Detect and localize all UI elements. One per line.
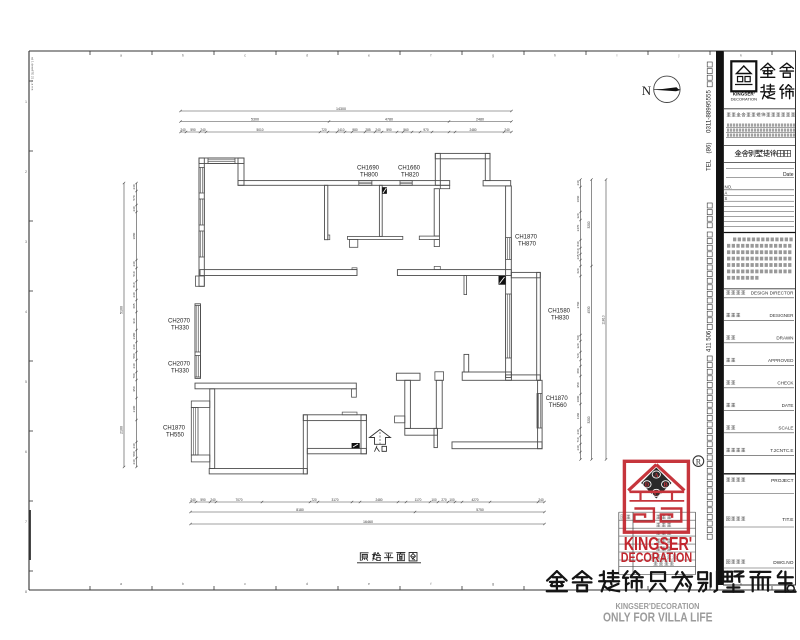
svg-text:235: 235 bbox=[576, 254, 580, 259]
svg-text:16460: 16460 bbox=[363, 520, 373, 524]
svg-text:APPROVED: APPROVED bbox=[768, 358, 794, 363]
svg-text:5010: 5010 bbox=[256, 128, 263, 132]
svg-text:TIT.E: TIT.E bbox=[782, 517, 793, 523]
svg-text:TH800: TH800 bbox=[360, 173, 379, 179]
svg-text:720: 720 bbox=[321, 128, 327, 132]
svg-text:680: 680 bbox=[576, 368, 580, 373]
svg-text:DESIGN DIRECTOR: DESIGN DIRECTOR bbox=[751, 290, 794, 295]
svg-text:(86): (86) bbox=[706, 142, 713, 153]
svg-text:510: 510 bbox=[132, 271, 136, 276]
svg-text:2480: 2480 bbox=[476, 117, 484, 121]
svg-text:2: 2 bbox=[25, 170, 27, 174]
svg-text:8180: 8180 bbox=[296, 508, 304, 512]
svg-text:1060: 1060 bbox=[576, 195, 580, 202]
svg-text:580: 580 bbox=[132, 353, 136, 358]
svg-text:TH330: TH330 bbox=[171, 326, 190, 332]
svg-text:b: b bbox=[182, 54, 184, 58]
svg-text:DECORATION: DECORATION bbox=[731, 97, 757, 102]
svg-text:240: 240 bbox=[576, 180, 580, 185]
svg-text:CH1580: CH1580 bbox=[548, 309, 571, 315]
svg-text:5: 5 bbox=[25, 380, 27, 384]
svg-text:S: S bbox=[725, 196, 728, 201]
svg-text:D: D bbox=[645, 482, 650, 489]
svg-text:710: 710 bbox=[576, 437, 580, 442]
svg-text:DECORATION: DECORATION bbox=[621, 550, 693, 566]
svg-text:f: f bbox=[431, 54, 432, 58]
svg-text:CH1690: CH1690 bbox=[357, 166, 380, 172]
svg-text:320: 320 bbox=[576, 213, 580, 218]
svg-text:4270: 4270 bbox=[471, 498, 478, 502]
svg-text:240: 240 bbox=[132, 292, 136, 297]
svg-text:720: 720 bbox=[311, 498, 317, 502]
svg-text:TEL: TEL bbox=[706, 159, 713, 171]
svg-text:240: 240 bbox=[180, 128, 186, 132]
svg-text:1: 1 bbox=[25, 100, 27, 104]
svg-text:240: 240 bbox=[132, 443, 136, 448]
svg-text:411 506: 411 506 bbox=[707, 330, 713, 352]
svg-text:1170: 1170 bbox=[415, 498, 422, 502]
svg-text:CHECK: CHECK bbox=[777, 380, 794, 385]
svg-text:7: 7 bbox=[25, 520, 27, 524]
svg-text:CH2070: CH2070 bbox=[168, 319, 191, 325]
svg-text:100: 100 bbox=[449, 498, 455, 502]
svg-text:4780: 4780 bbox=[385, 117, 393, 121]
svg-text:Date: Date bbox=[783, 172, 794, 178]
svg-text:2380: 2380 bbox=[132, 332, 136, 339]
svg-text:f: f bbox=[431, 582, 432, 586]
svg-text:240: 240 bbox=[132, 184, 136, 189]
svg-text:570: 570 bbox=[132, 195, 136, 200]
svg-text:2760: 2760 bbox=[576, 301, 580, 308]
svg-text:7070: 7070 bbox=[235, 498, 242, 502]
svg-text:790: 790 bbox=[576, 335, 580, 340]
svg-text:840: 840 bbox=[576, 241, 580, 246]
svg-text:590: 590 bbox=[200, 498, 206, 502]
svg-text:CH1870: CH1870 bbox=[546, 396, 569, 402]
svg-text:e: e bbox=[368, 54, 370, 58]
svg-text:2480: 2480 bbox=[469, 128, 476, 132]
svg-text:580: 580 bbox=[132, 451, 136, 456]
svg-text:2480: 2480 bbox=[375, 498, 382, 502]
svg-text:5750: 5750 bbox=[476, 508, 484, 512]
svg-text:950: 950 bbox=[576, 382, 580, 387]
svg-text:6: 6 bbox=[25, 450, 27, 454]
svg-text:3080: 3080 bbox=[132, 232, 136, 239]
svg-text:590: 590 bbox=[190, 128, 196, 132]
svg-text:240: 240 bbox=[504, 128, 510, 132]
svg-text:3170: 3170 bbox=[331, 498, 338, 502]
svg-text:DESIGNER: DESIGNER bbox=[770, 313, 795, 318]
svg-text:720: 720 bbox=[576, 353, 580, 358]
svg-text:j: j bbox=[678, 54, 680, 58]
svg-text:810: 810 bbox=[132, 282, 136, 287]
svg-text:NO.: NO. bbox=[725, 185, 733, 190]
svg-text:1410: 1410 bbox=[337, 128, 344, 132]
svg-text:240: 240 bbox=[132, 459, 136, 464]
svg-text:605: 605 bbox=[132, 303, 136, 308]
svg-text:620: 620 bbox=[576, 268, 580, 273]
svg-text:4: 4 bbox=[25, 310, 27, 314]
svg-text:240: 240 bbox=[210, 498, 216, 502]
svg-text:CH2070: CH2070 bbox=[168, 362, 191, 368]
svg-text:8: 8 bbox=[25, 590, 27, 594]
svg-text:14300: 14300 bbox=[336, 107, 346, 111]
svg-text:240: 240 bbox=[132, 344, 136, 349]
svg-text:950: 950 bbox=[132, 386, 136, 391]
svg-text:2100: 2100 bbox=[132, 405, 136, 412]
svg-text:240: 240 bbox=[375, 128, 381, 132]
svg-text:240: 240 bbox=[576, 429, 580, 434]
svg-text:DATE: DATE bbox=[782, 403, 794, 408]
svg-text:PROJECT: PROJECT bbox=[771, 478, 793, 484]
svg-text:2100: 2100 bbox=[120, 426, 124, 434]
svg-text:TH560: TH560 bbox=[549, 403, 568, 409]
svg-text:240: 240 bbox=[538, 498, 544, 502]
svg-text:700: 700 bbox=[132, 373, 136, 378]
svg-text:g: g bbox=[492, 582, 494, 586]
svg-text:560: 560 bbox=[403, 128, 409, 132]
svg-text:a: a bbox=[120, 582, 122, 586]
svg-text:R: R bbox=[696, 457, 702, 466]
svg-text:240: 240 bbox=[132, 206, 136, 211]
svg-text:sd 1 desellTE 21 n. a n-a: sd 1 desellTE 21 n. a n-a bbox=[31, 57, 35, 91]
svg-text:d: d bbox=[306, 54, 308, 58]
svg-text:1160: 1160 bbox=[576, 412, 580, 419]
svg-text:910: 910 bbox=[132, 318, 136, 323]
svg-text:TH820: TH820 bbox=[401, 173, 420, 179]
svg-text:A: A bbox=[654, 472, 659, 479]
svg-text:970: 970 bbox=[423, 128, 429, 132]
svg-text:ONLY FOR VILLA LIFE: ONLY FOR VILLA LIFE bbox=[603, 609, 713, 624]
svg-text:2470: 2470 bbox=[576, 224, 580, 231]
svg-text:e: e bbox=[368, 582, 370, 586]
svg-text:A: A bbox=[725, 191, 728, 196]
svg-text:240: 240 bbox=[132, 363, 136, 368]
svg-text:1000: 1000 bbox=[576, 395, 580, 402]
svg-text:510: 510 bbox=[576, 248, 580, 253]
svg-text:TH330: TH330 bbox=[171, 369, 190, 375]
svg-text:0311-88995555: 0311-88995555 bbox=[706, 90, 713, 133]
svg-text:240: 240 bbox=[576, 445, 580, 450]
svg-text:TH550: TH550 bbox=[166, 433, 185, 439]
svg-text:5100: 5100 bbox=[120, 306, 124, 314]
svg-text:b: b bbox=[182, 582, 184, 586]
svg-text:285: 285 bbox=[365, 128, 371, 132]
svg-text:a: a bbox=[120, 54, 122, 58]
svg-text:h: h bbox=[554, 54, 556, 58]
svg-text:3: 3 bbox=[25, 240, 27, 244]
svg-text:T.2CNTC.E: T.2CNTC.E bbox=[770, 448, 793, 453]
svg-text:980: 980 bbox=[352, 128, 358, 132]
svg-text:100: 100 bbox=[431, 498, 437, 502]
svg-text:SCALE: SCALE bbox=[778, 425, 793, 430]
svg-text:CH1870: CH1870 bbox=[163, 426, 186, 432]
svg-text:3200: 3200 bbox=[587, 416, 591, 423]
svg-text:590: 590 bbox=[386, 128, 392, 132]
svg-text:240: 240 bbox=[200, 128, 206, 132]
svg-text:g: g bbox=[492, 54, 494, 58]
svg-text:DRAWN: DRAWN bbox=[776, 335, 793, 340]
svg-text:TH870: TH870 bbox=[518, 242, 537, 248]
svg-text:TH830: TH830 bbox=[551, 316, 570, 322]
svg-text:320: 320 bbox=[576, 343, 580, 348]
svg-text:240: 240 bbox=[190, 498, 196, 502]
svg-text:5300: 5300 bbox=[251, 117, 259, 121]
svg-text:11810: 11810 bbox=[602, 315, 606, 324]
svg-text:240: 240 bbox=[132, 261, 136, 266]
svg-text:B: B bbox=[664, 482, 668, 489]
svg-text:4530: 4530 bbox=[587, 306, 591, 313]
svg-text:DWG.NO: DWG.NO bbox=[773, 560, 794, 566]
svg-text:d: d bbox=[306, 582, 308, 586]
svg-text:270: 270 bbox=[441, 498, 447, 502]
svg-text:CH1660: CH1660 bbox=[398, 166, 421, 172]
svg-text:N: N bbox=[642, 83, 652, 98]
svg-text:CH1870: CH1870 bbox=[515, 235, 538, 241]
svg-text:3200: 3200 bbox=[587, 221, 591, 228]
